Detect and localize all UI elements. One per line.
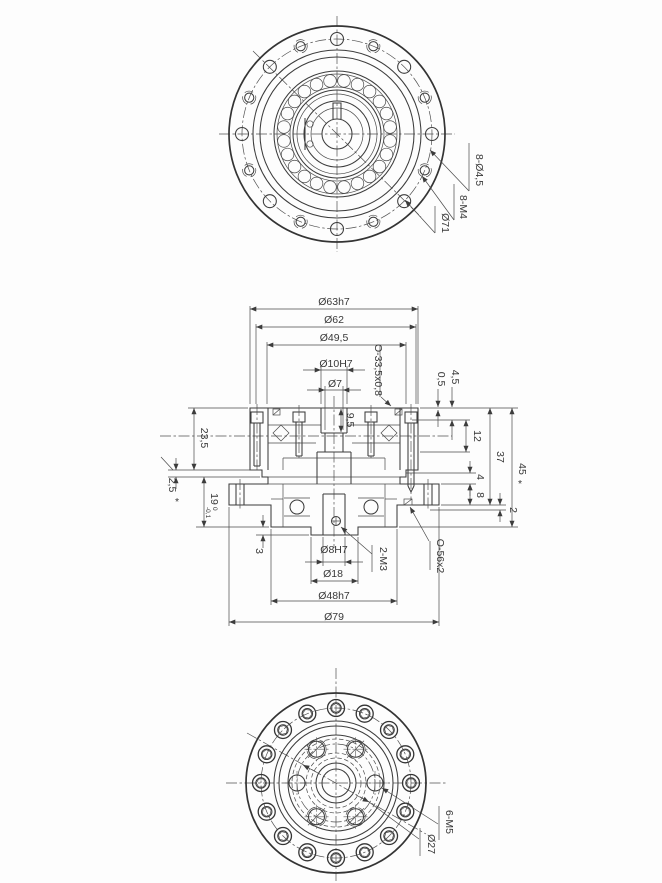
dim-dia-7: Ø7 bbox=[328, 378, 342, 390]
hub-hole bbox=[307, 141, 313, 147]
cross-roller bbox=[381, 425, 397, 441]
dim-dia-18: Ø18 bbox=[323, 568, 343, 580]
dim-4: 4 bbox=[474, 474, 486, 480]
gearbox-technical-drawing: 8-Ø4,5 8-M4 Ø71 bbox=[0, 0, 662, 883]
label-oring-bottom: O-56x2 bbox=[434, 539, 446, 574]
footnote-star: * bbox=[518, 478, 522, 490]
dim-0-5: 0,5 bbox=[435, 372, 447, 387]
dim-3: 3 bbox=[253, 548, 265, 554]
label-oring-top: O-33,5x0,8 bbox=[372, 344, 384, 396]
back-view: 6-M5 Ø27 bbox=[226, 668, 455, 881]
dim-dia-49-5: Ø49,5 bbox=[320, 332, 349, 344]
dim-2: 2 bbox=[507, 507, 519, 513]
footnote-star: * bbox=[175, 496, 179, 508]
drawing-sheet: 8-Ø4,5 8-M4 Ø71 bbox=[0, 0, 662, 883]
section-dimensions: Ø63h7 Ø62 Ø49,5 Ø10H7 Ø7 O-33,5x0,8 0,5 … bbox=[161, 296, 528, 626]
dim-dia-10h7: Ø10H7 bbox=[319, 358, 352, 370]
dim-dia-48h7: Ø48h7 bbox=[318, 590, 350, 602]
dim-23-5: 23,5 bbox=[198, 428, 210, 449]
dim-dia-79: Ø79 bbox=[324, 611, 344, 623]
dim-12: 12 bbox=[471, 430, 483, 442]
front-view: 8-Ø4,5 8-M4 Ø71 bbox=[219, 16, 485, 252]
svg-text:-0,1: -0,1 bbox=[204, 507, 211, 519]
dim-dia-8h7: Ø8H7 bbox=[320, 544, 348, 556]
dim-45: 45 bbox=[516, 463, 528, 475]
dim-9-5: 9,5 bbox=[344, 413, 356, 428]
front-view-leaders: 8-Ø4,5 8-M4 Ø71 bbox=[405, 143, 485, 233]
output-bearing-ball bbox=[290, 500, 304, 514]
dim-37: 37 bbox=[494, 451, 506, 463]
dim-2-5: 2,5 bbox=[166, 478, 178, 493]
label-through-holes: 8-Ø4,5 bbox=[473, 154, 485, 186]
cross-roller bbox=[273, 425, 289, 441]
dim-19-with-tolerance: 19 0 -0,1 bbox=[204, 493, 220, 518]
back-view-leaders: 6-M5 Ø27 bbox=[303, 765, 455, 856]
dim-8: 8 bbox=[474, 492, 486, 498]
hub-hole bbox=[307, 121, 313, 127]
section-view: Ø63h7 Ø62 Ø49,5 Ø10H7 Ø7 O-33,5x0,8 0,5 … bbox=[160, 296, 528, 626]
label-bolt-circle-dia: Ø27 bbox=[425, 834, 437, 854]
dim-dia-62: Ø62 bbox=[324, 314, 344, 326]
label-set-screws: 2-M3 bbox=[377, 547, 389, 571]
dim-4-5: 4,5 bbox=[449, 370, 461, 385]
svg-text:19: 19 bbox=[208, 493, 220, 505]
label-tapped-holes: 8-M4 bbox=[457, 195, 469, 219]
svg-text:0: 0 bbox=[211, 507, 218, 511]
label-tapped-holes: 6-M5 bbox=[443, 810, 455, 834]
dim-dia-63h7: Ø63h7 bbox=[318, 296, 350, 308]
label-bolt-circle-dia: Ø71 bbox=[439, 213, 451, 233]
output-bearing-ball bbox=[364, 500, 378, 514]
